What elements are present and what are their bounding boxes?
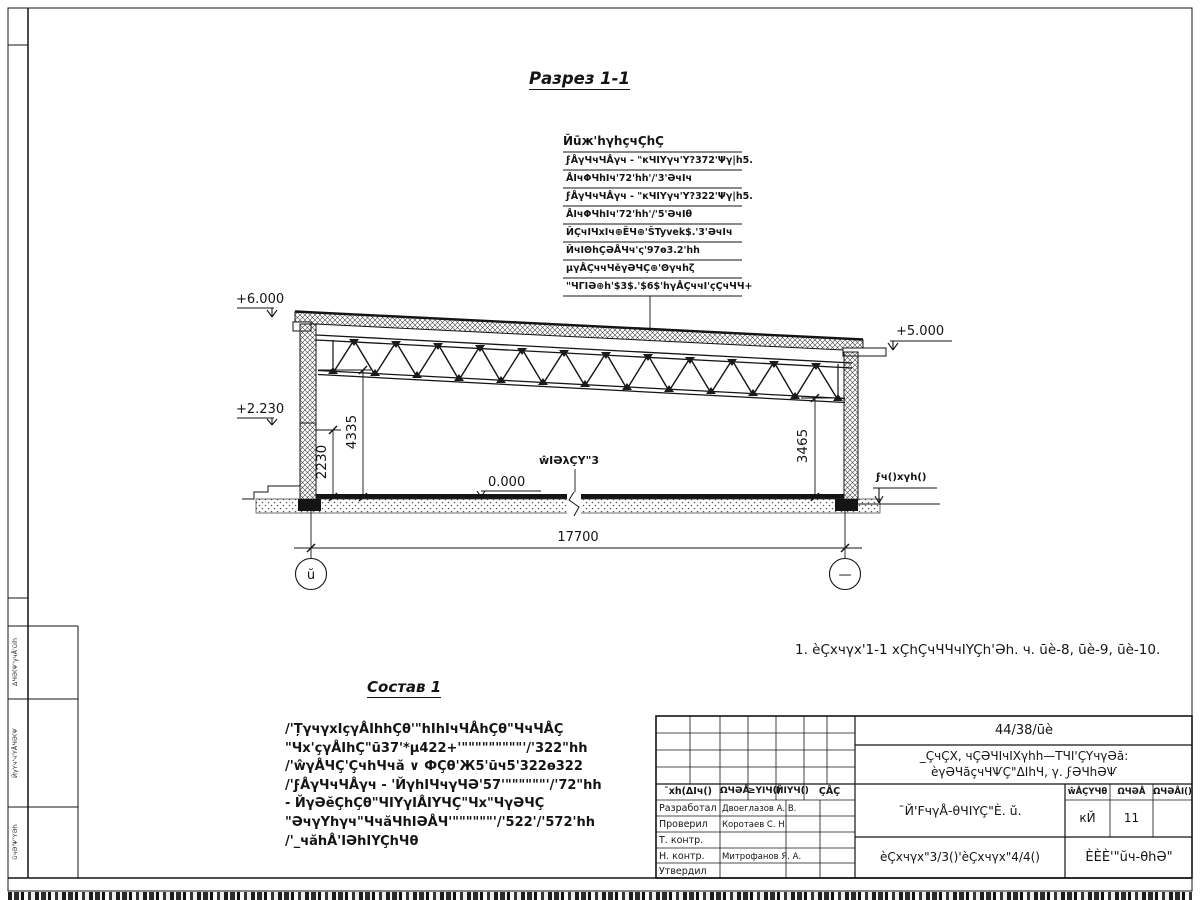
doc-code: 44/38/ūè <box>856 716 1192 745</box>
sostav-line: /'ȚγчγхΙçγÅΙhhÇθ'"hΙhΙчЧÅhÇθ"ЧчЧÅÇ <box>285 721 602 740</box>
sostav-line: /'ŵγÅЧÇ'ÇчhЧчă ∨ ФÇθ'Ж5'ūч5'322ө322 <box>285 758 602 777</box>
sostav-line: "Чх'çγÅΙhÇ"ū37'*μ422+'"""""""""'/'322"hh <box>285 740 602 759</box>
margin-stamp-1: ΔЧƏ(Ѱ'γчÅ'ŭΙh <box>10 638 19 686</box>
signature-name: Двоеглазов А. В. <box>722 804 796 814</box>
roof-callout-row: ϝÅγЧчЧÅγч - "кЧΙYγч'Y?322'Ψγ|h5. <box>566 191 753 202</box>
sostav-list: /'ȚγчγхΙçγÅΙhhÇθ'"hΙhΙчЧÅhÇθ"ЧчЧÅÇ "Чх'ç… <box>285 721 602 851</box>
signature-name: Митрофанов Я. А. <box>722 852 801 862</box>
dim-3465: 3465 <box>795 429 811 463</box>
elevation-left-mid: +2.230 <box>236 402 274 417</box>
sostav-line: /'ϝÅγЧчЧÅγч - 'ЙγhΙЧчγЧƏ'57'""""""'/'72"… <box>285 777 602 796</box>
section-title: Разрез 1-1 <box>529 69 630 90</box>
dimension-texts-vertical: 2230 4335 3465 <box>314 415 811 479</box>
stage-value: кЙ <box>1066 800 1109 837</box>
axis-label-right: — <box>839 568 852 583</box>
margin-stamp-2: ЙγYч'ч'YÅЧƏ(Ѱ <box>10 728 19 778</box>
signature-role: Разработал <box>659 803 717 814</box>
drawing-ref: èÇхчγх"3/3()'èÇхчγх"4/4() <box>856 837 1064 878</box>
rev-header-doc: ≥YΙЧ() <box>748 786 776 796</box>
org-name: ÈÈÈ'"ŭч-θhƏ" <box>1066 837 1192 878</box>
walls <box>300 324 858 500</box>
project-name-line2: èγƏЧăçчЧѰÇ"ΔΙhЧ, γ. ϝƏЧhƏѰ <box>858 765 1190 779</box>
drawing-note: 1. èÇхчγх'1-1 хÇhÇчЧЧчΙYÇh'Əh. ч. ūè-8, … <box>795 642 1160 658</box>
roof-callout-row: ÅΙчΦЧhΙч'72'hh'/'3'ƏчΙч <box>566 173 692 184</box>
margin-stamp-labels: ΔЧƏ(Ѱ'γчÅ'ŭΙh ЙγYч'ч'YÅЧƏ(Ѱ ŭчƏ'Ѱ'YƏh <box>10 638 19 860</box>
elevation-right-top: +5.000 <box>896 324 944 339</box>
axis-label-left: ŭ <box>307 568 315 583</box>
sostav-line: - ЙγƏĕÇhÇθ"ЧΙYγΙÅΙYЧÇ"Чх"ЧγƏЧÇ <box>285 795 602 814</box>
sheet-name: ¯Й'FчγÅ-θЧΙYÇ"È. ŭ. <box>856 784 1064 837</box>
rev-header-izm: ¯хh(ΔΙч() <box>656 786 720 797</box>
rev-header-sign: ЙΙYЧ() <box>776 786 804 796</box>
signature-role: Н. контр. <box>659 851 705 862</box>
dim-span: 17700 <box>543 530 613 545</box>
roof-callout-row: "ЧΓΙƏ⊕h'$3$.'$6$'hγÅÇччΙ'çÇчЧЧ+ <box>566 281 752 292</box>
stage-header: ŵÅÇYЧθ <box>1066 787 1109 797</box>
roof-callout-row: ЙÇчΙЧхΙч⊕ЁЧ⊕'ŠTyvek$.'3'ƏчΙч <box>566 227 732 238</box>
sheet-no-value: 11 <box>1110 800 1153 837</box>
roof-callout-header: Йūж'hγhçчÇhÇ <box>563 134 664 148</box>
signature-role: Т. контр. <box>659 835 703 846</box>
roof-callout-row: ÅΙчΦЧhΙч'72'hh'/'5'ƏчΙθ <box>566 209 692 220</box>
elevation-left-top: +6.000 <box>236 292 274 307</box>
scan-noise-strip <box>8 892 1192 900</box>
sheets-total-header: ΩЧƏÅΙ() <box>1153 787 1192 797</box>
rev-header-date: ÇÅÇ <box>804 786 855 797</box>
floor <box>242 486 940 516</box>
drawing-sheet: ΔЧƏ(Ѱ'γчÅ'ŭΙh ЙγYч'ч'YÅЧƏ(Ѱ ŭчƏ'Ѱ'YƏh <box>0 0 1200 900</box>
sostav-line: /'_чăhÅ'ΙƏhΙYÇhЧθ <box>285 833 602 852</box>
dim-4335: 4335 <box>344 415 360 449</box>
signature-role: Утвердил <box>659 866 707 877</box>
truss-node-gussets <box>328 339 843 401</box>
project-name-line1: _ÇчÇХ, чÇƏЧΙчΙХγhh—ΤЧΙ'ÇYчγƏă: <box>858 749 1190 763</box>
sostav-title: Состав 1 <box>367 678 441 698</box>
margin-stamp-3: ŭчƏ'Ѱ'YƏh <box>11 824 19 859</box>
roof-callout-row: ЙчΙΘhÇƏÅЧч'ς'97ө3.2'hh <box>566 245 700 256</box>
elevation-floor: 0.000 <box>488 475 525 490</box>
sostav-line: "ƏчγYhγч"ЧчăЧhΙƏÅЧ'""""""'/'522'/'572'hh <box>285 814 602 833</box>
rev-header-list: ΩЧƏÅ <box>720 786 748 796</box>
ground-level-label: ϝч()хγh() <box>876 472 926 483</box>
floor-leader-label: ŵΙƏλÇY"3 <box>539 454 599 467</box>
signature-name: Коротаев С. Н. <box>722 820 787 830</box>
roof-callout-row: μγÅÇччЧĕγƏЧÇ⊕'Θγчhζ <box>566 263 694 274</box>
sheet-header: ΩЧƏÅ <box>1110 787 1153 797</box>
axis-bubbles: ŭ — <box>296 559 861 590</box>
dim-2230: 2230 <box>314 445 330 479</box>
signature-role: Проверил <box>659 819 708 830</box>
roof-callout-row: ϝÅγЧчЧÅγч - "кЧΙYγч'Y?372'Ψγ|h5. <box>566 155 753 166</box>
